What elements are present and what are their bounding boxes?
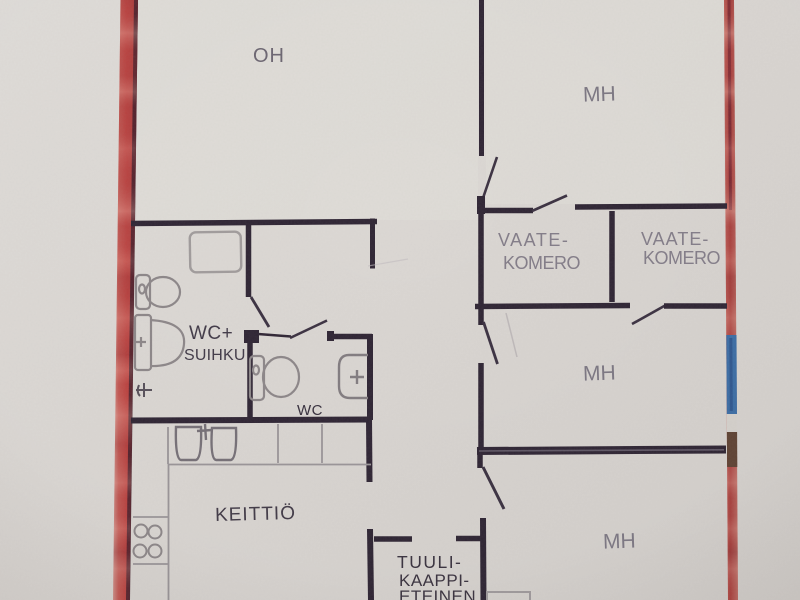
svg-text:SUIHKU: SUIHKU	[184, 347, 246, 364]
svg-text:KOMERO: KOMERO	[643, 248, 721, 268]
svg-text:VAATE-: VAATE-	[641, 229, 709, 249]
svg-text:WC+: WC+	[189, 323, 233, 344]
svg-text:MH: MH	[603, 529, 636, 553]
svg-text:KOMERO: KOMERO	[503, 253, 581, 273]
svg-text:KEITTIÖ: KEITTIÖ	[215, 503, 296, 526]
svg-text:OH: OH	[253, 45, 285, 67]
svg-text:MH: MH	[583, 361, 616, 385]
svg-text:MH: MH	[583, 82, 616, 106]
svg-text:VAATE-: VAATE-	[498, 230, 569, 250]
svg-text:ETEINEN: ETEINEN	[399, 587, 476, 600]
svg-text:WC: WC	[297, 402, 323, 419]
svg-text:TUULI-: TUULI-	[397, 552, 462, 572]
